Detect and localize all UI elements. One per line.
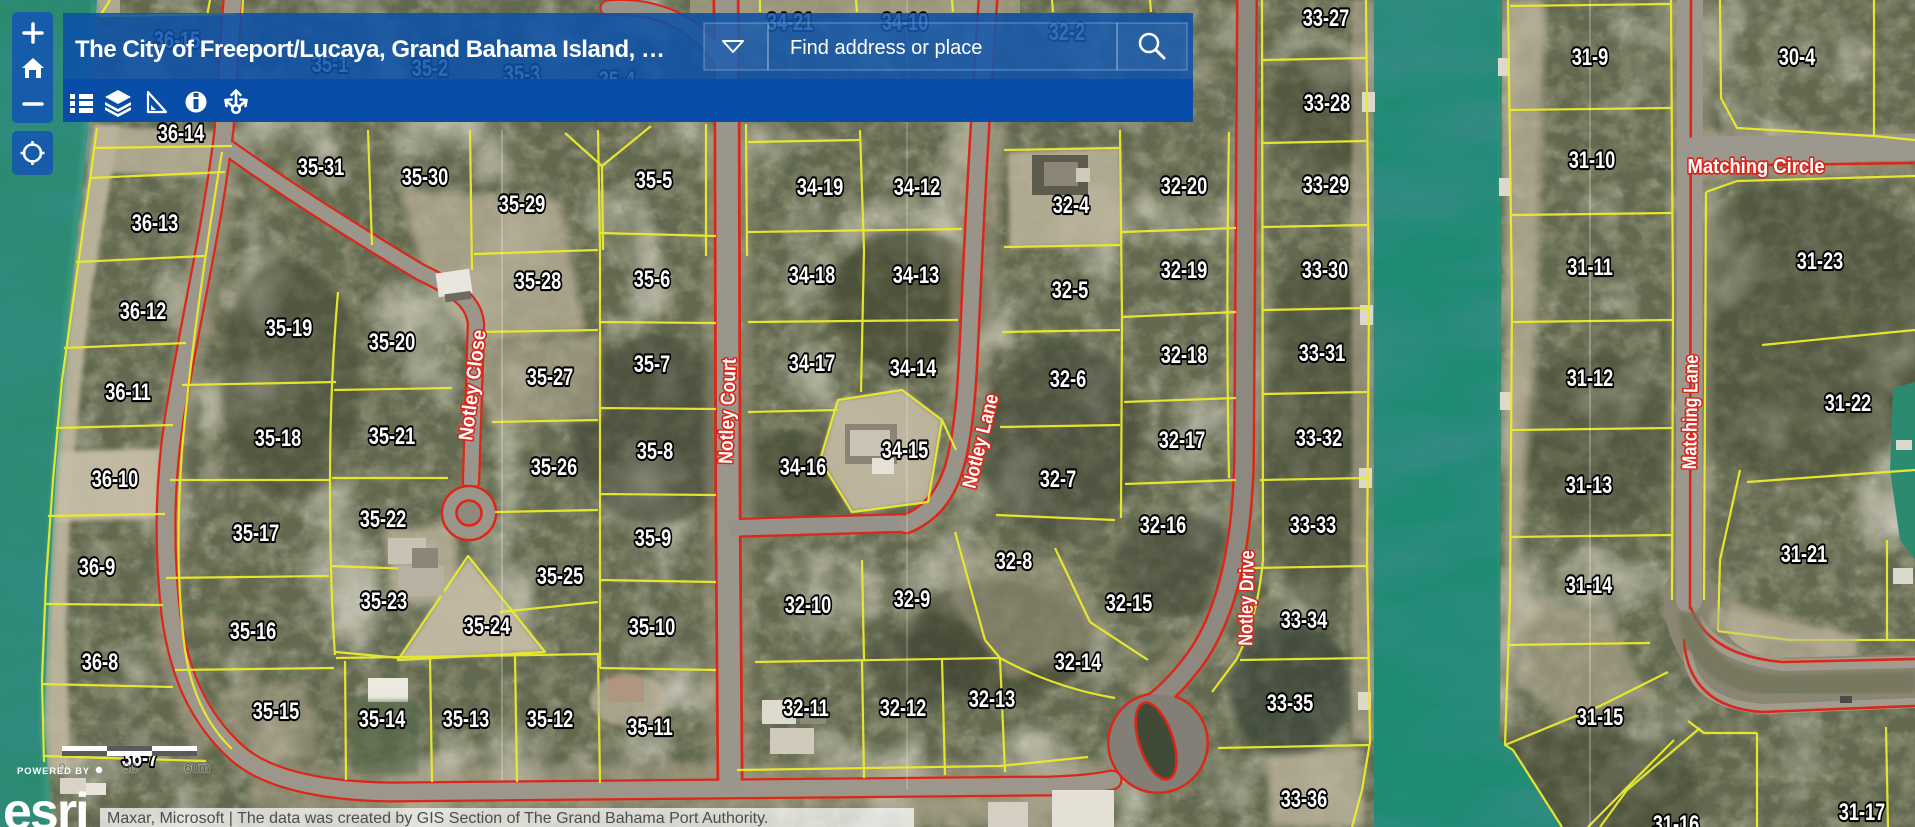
svg-text:36-8: 36-8 <box>82 649 119 676</box>
svg-text:Notley Court: Notley Court <box>714 357 740 464</box>
svg-text:35-21: 35-21 <box>369 423 416 450</box>
svg-text:35-26: 35-26 <box>531 454 578 481</box>
svg-text:30: 30 <box>123 760 137 775</box>
svg-text:33-29: 33-29 <box>1303 172 1350 199</box>
svg-text:35-31: 35-31 <box>298 154 345 181</box>
svg-text:34-18: 34-18 <box>789 262 836 289</box>
svg-text:31-23: 31-23 <box>1797 248 1844 275</box>
svg-text:35-9: 35-9 <box>635 525 672 552</box>
svg-text:31-21: 31-21 <box>1781 541 1828 568</box>
svg-text:34-15: 34-15 <box>882 437 929 464</box>
svg-text:35-22: 35-22 <box>360 506 407 533</box>
svg-text:35-16: 35-16 <box>230 618 277 645</box>
svg-text:32-8: 32-8 <box>996 548 1033 575</box>
svg-text:32-13: 32-13 <box>969 686 1016 713</box>
svg-text:Find address or place: Find address or place <box>790 37 982 59</box>
svg-text:31-15: 31-15 <box>1577 704 1624 731</box>
svg-text:35-29: 35-29 <box>499 191 546 218</box>
svg-text:36-9: 36-9 <box>79 554 116 581</box>
svg-text:35-28: 35-28 <box>515 268 562 295</box>
svg-text:35-5: 35-5 <box>636 167 673 194</box>
svg-text:36-13: 36-13 <box>132 210 179 237</box>
svg-text:32-16: 32-16 <box>1140 512 1187 539</box>
svg-text:33-36: 33-36 <box>1281 786 1328 813</box>
svg-text:31-10: 31-10 <box>1569 147 1616 174</box>
svg-text:34-16: 34-16 <box>780 454 827 481</box>
svg-text:35-11: 35-11 <box>627 714 673 741</box>
svg-text:31-11: 31-11 <box>1567 254 1613 281</box>
svg-text:60m: 60m <box>184 760 209 775</box>
svg-text:32-6: 32-6 <box>1050 366 1087 393</box>
svg-text:33-34: 33-34 <box>1281 607 1328 634</box>
svg-text:36-14: 36-14 <box>158 120 205 147</box>
svg-text:The City of Freeport/Lucaya, G: The City of Freeport/Lucaya, Grand Baham… <box>75 36 665 63</box>
svg-text:32-11: 32-11 <box>783 695 829 722</box>
svg-text:POWERED BY: POWERED BY <box>17 766 90 777</box>
svg-text:34-19: 34-19 <box>797 174 844 201</box>
svg-text:33-28: 33-28 <box>1304 90 1351 117</box>
svg-text:35-25: 35-25 <box>537 563 584 590</box>
svg-text:32-4: 32-4 <box>1053 192 1090 219</box>
svg-text:31-13: 31-13 <box>1566 472 1613 499</box>
svg-text:35-10: 35-10 <box>629 614 676 641</box>
svg-text:33-30: 33-30 <box>1302 257 1349 284</box>
svg-text:32-17: 32-17 <box>1159 427 1206 454</box>
svg-text:Matching Circle: Matching Circle <box>1688 156 1825 178</box>
svg-text:35-18: 35-18 <box>255 425 302 452</box>
svg-text:33-33: 33-33 <box>1290 512 1337 539</box>
svg-text:32-9: 32-9 <box>894 586 931 613</box>
svg-text:32-12: 32-12 <box>880 695 927 722</box>
svg-text:36-10: 36-10 <box>92 466 139 493</box>
svg-text:Notley Drive: Notley Drive <box>1234 550 1259 646</box>
svg-text:35-19: 35-19 <box>266 315 313 342</box>
svg-text:32-7: 32-7 <box>1040 466 1076 493</box>
svg-text:31-17: 31-17 <box>1839 799 1886 826</box>
svg-text:35-12: 35-12 <box>527 706 574 733</box>
svg-text:35-17: 35-17 <box>233 520 280 547</box>
svg-text:31-12: 31-12 <box>1567 365 1614 392</box>
svg-text:35-15: 35-15 <box>253 698 300 725</box>
svg-text:31-16: 31-16 <box>1653 811 1700 827</box>
svg-text:esri: esri <box>3 783 88 827</box>
svg-text:35-23: 35-23 <box>361 588 408 615</box>
svg-text:35-8: 35-8 <box>637 438 674 465</box>
svg-text:31-14: 31-14 <box>1566 572 1613 599</box>
svg-text:31-9: 31-9 <box>1572 44 1609 71</box>
svg-text:31-22: 31-22 <box>1825 390 1872 417</box>
svg-text:35-20: 35-20 <box>369 329 416 356</box>
svg-text:35-7: 35-7 <box>634 351 670 378</box>
svg-text:36-11: 36-11 <box>105 379 151 406</box>
svg-text:35-6: 35-6 <box>634 266 671 293</box>
svg-text:32-18: 32-18 <box>1161 342 1208 369</box>
svg-text:35-27: 35-27 <box>527 364 574 391</box>
svg-text:33-27: 33-27 <box>1303 5 1350 32</box>
svg-text:35-14: 35-14 <box>359 706 406 733</box>
svg-text:34-14: 34-14 <box>890 355 937 382</box>
svg-text:33-35: 33-35 <box>1267 690 1314 717</box>
svg-text:Maxar, Microsoft | The data wa: Maxar, Microsoft | The data was created … <box>107 810 768 827</box>
svg-text:Matching Lane: Matching Lane <box>1677 354 1702 469</box>
svg-text:35-30: 35-30 <box>402 164 449 191</box>
svg-text:34-12: 34-12 <box>894 174 941 201</box>
svg-text:32-14: 32-14 <box>1055 649 1102 676</box>
svg-text:33-32: 33-32 <box>1296 425 1343 452</box>
svg-text:34-17: 34-17 <box>789 350 836 377</box>
svg-text:36-12: 36-12 <box>120 298 167 325</box>
svg-text:34-13: 34-13 <box>893 262 940 289</box>
svg-text:32-19: 32-19 <box>1161 257 1208 284</box>
svg-text:30-4: 30-4 <box>1779 44 1816 71</box>
svg-text:33-31: 33-31 <box>1299 340 1346 367</box>
svg-text:32-20: 32-20 <box>1161 173 1208 200</box>
svg-text:35-24: 35-24 <box>464 613 511 640</box>
svg-text:32-10: 32-10 <box>785 592 832 619</box>
svg-text:32-5: 32-5 <box>1052 277 1089 304</box>
svg-text:35-13: 35-13 <box>443 706 490 733</box>
svg-text:32-15: 32-15 <box>1106 590 1153 617</box>
